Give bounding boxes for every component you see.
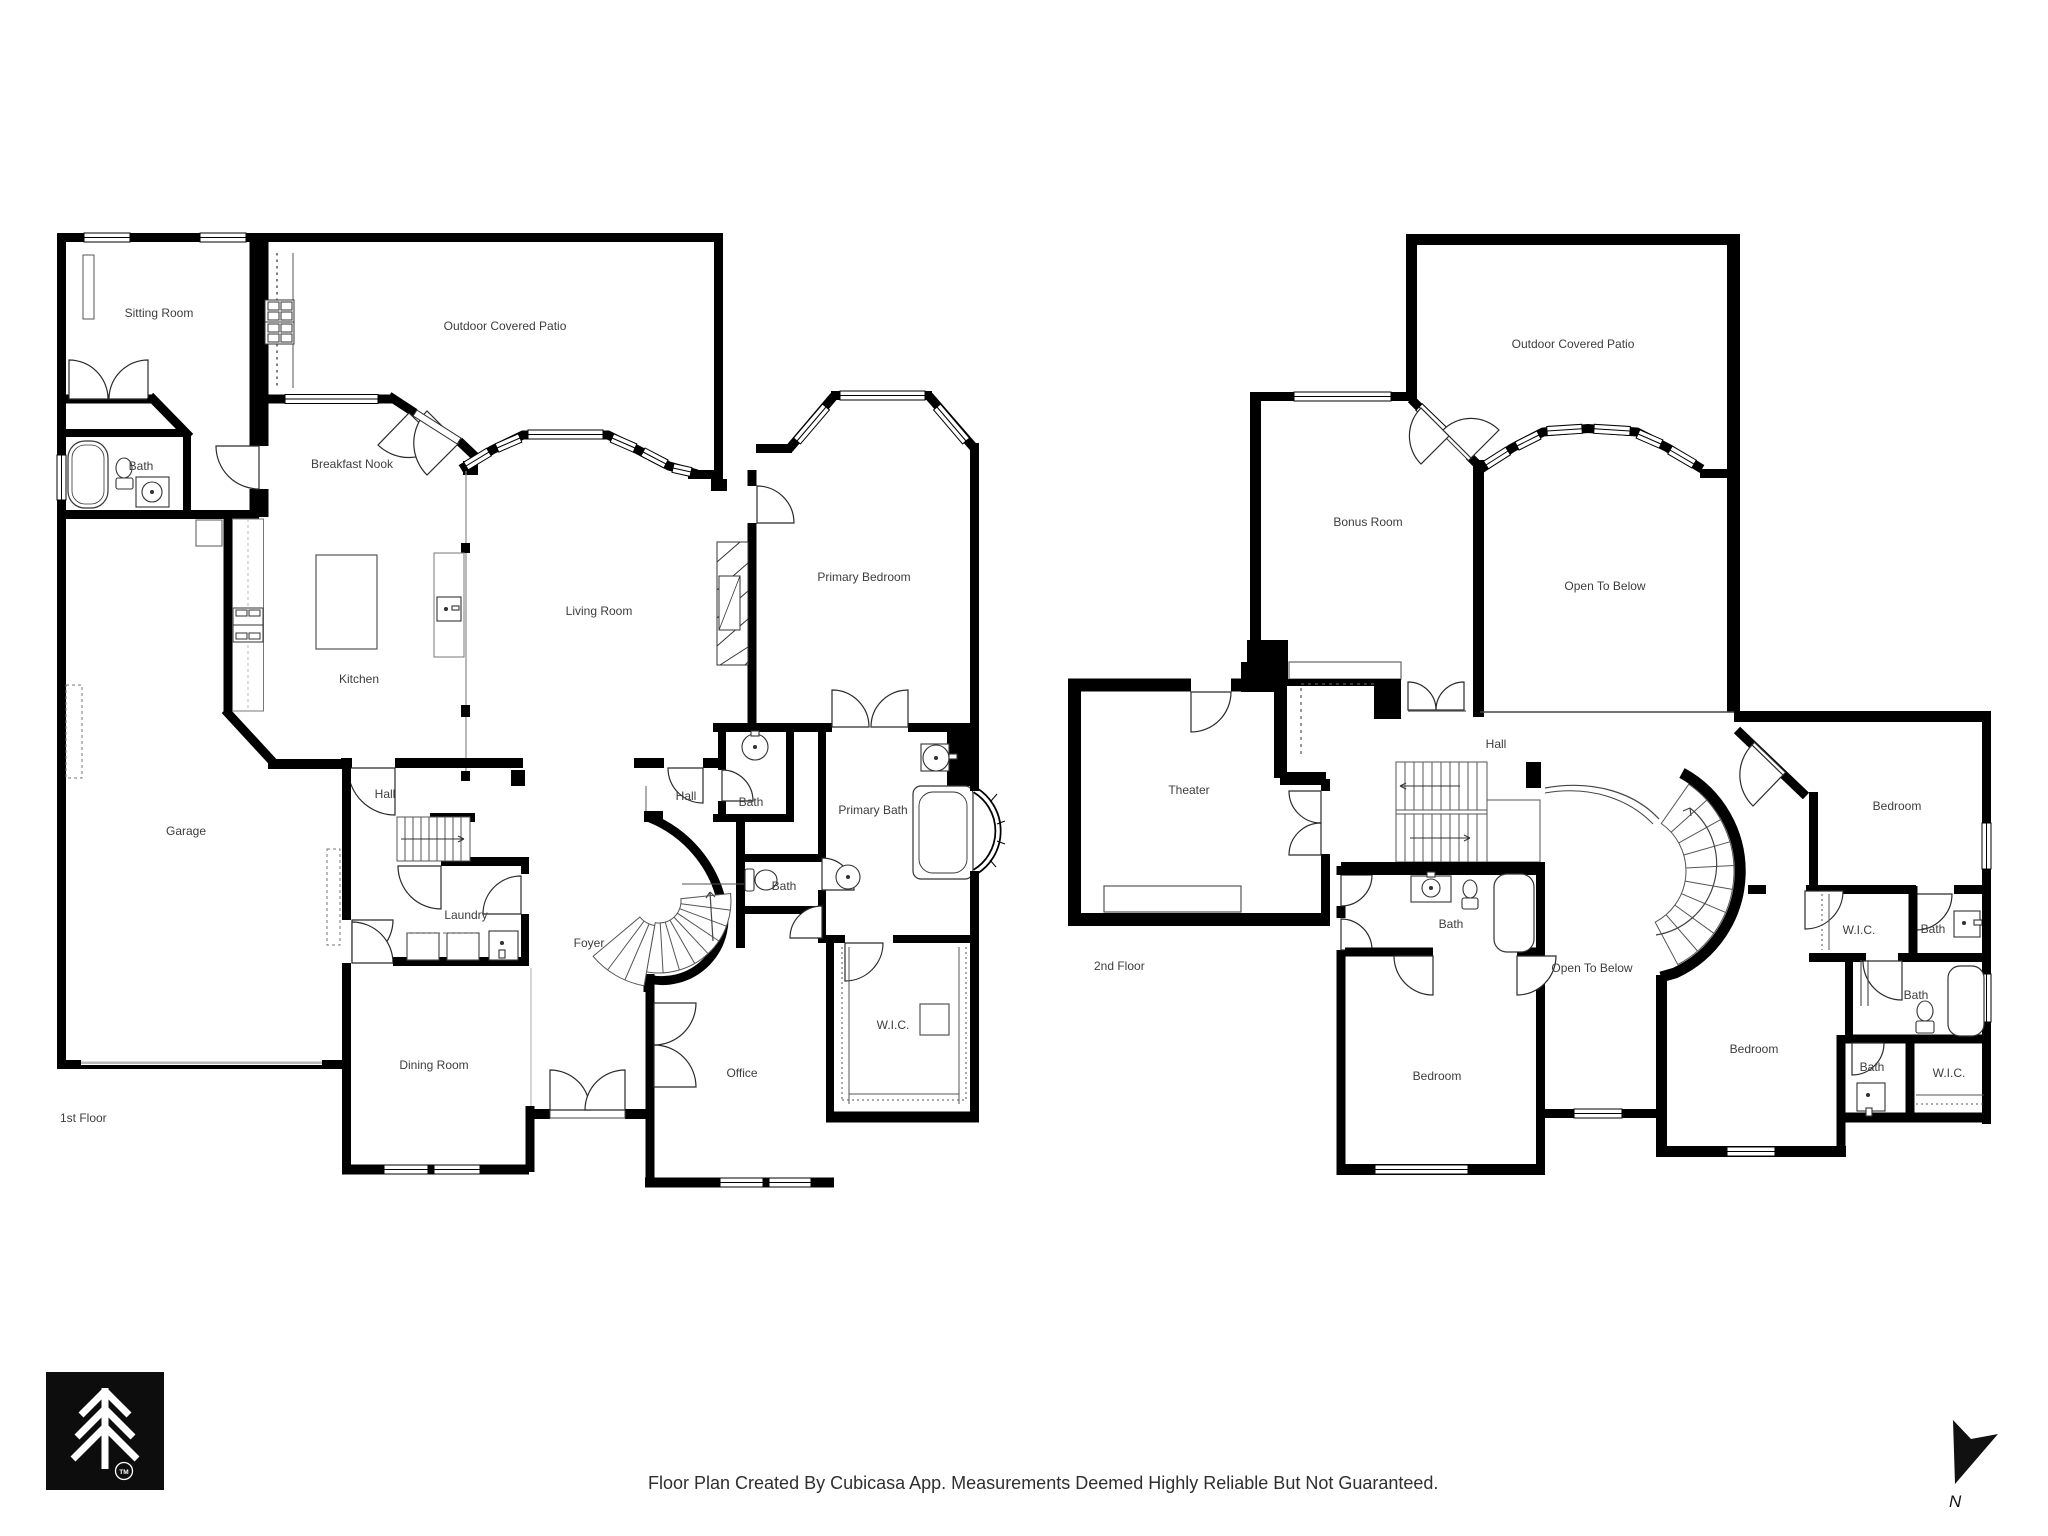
svg-text:Living Room: Living Room (566, 604, 633, 618)
svg-text:W.I.C.: W.I.C. (1933, 1066, 1966, 1080)
svg-text:Bonus Room: Bonus Room (1333, 515, 1402, 529)
svg-text:TM: TM (119, 1469, 128, 1476)
svg-text:Laundry: Laundry (444, 908, 487, 922)
svg-text:Bath: Bath (1439, 917, 1464, 931)
svg-text:W.I.C.: W.I.C. (1843, 923, 1876, 937)
svg-text:Open To Below: Open To Below (1551, 961, 1632, 975)
svg-text:Sitting Room: Sitting Room (125, 306, 194, 320)
svg-text:W.I.C.: W.I.C. (877, 1018, 910, 1032)
svg-text:Hall: Hall (1486, 737, 1507, 751)
svg-text:Hall: Hall (676, 789, 697, 803)
svg-text:Bath: Bath (739, 795, 764, 809)
svg-text:Kitchen: Kitchen (339, 672, 379, 686)
svg-text:Outdoor Covered Patio: Outdoor Covered Patio (444, 319, 567, 333)
svg-text:Bath: Bath (1921, 922, 1946, 936)
svg-text:Bedroom: Bedroom (1730, 1042, 1779, 1056)
svg-text:Foyer: Foyer (574, 936, 605, 950)
svg-text:Garage: Garage (166, 824, 206, 838)
svg-text:Bedroom: Bedroom (1413, 1069, 1462, 1083)
svg-text:Breakfast Nook: Breakfast Nook (311, 457, 394, 471)
svg-text:Bedroom: Bedroom (1873, 799, 1922, 813)
svg-text:2nd Floor: 2nd Floor (1094, 959, 1145, 973)
svg-text:Bath: Bath (129, 459, 154, 473)
svg-text:Office: Office (726, 1066, 757, 1080)
svg-text:Bath: Bath (1860, 1060, 1885, 1074)
svg-text:N: N (1949, 1492, 1962, 1511)
svg-text:Primary Bedroom: Primary Bedroom (817, 570, 910, 584)
svg-text:Outdoor Covered Patio: Outdoor Covered Patio (1512, 337, 1635, 351)
svg-text:Dining Room: Dining Room (399, 1058, 468, 1072)
svg-text:Theater: Theater (1168, 783, 1209, 797)
svg-text:Primary Bath: Primary Bath (838, 803, 907, 817)
svg-text:Bath: Bath (1904, 988, 1929, 1002)
svg-text:1st Floor: 1st Floor (60, 1111, 107, 1125)
svg-text:Bath: Bath (772, 879, 797, 893)
svg-text:Floor Plan Created By Cubicasa: Floor Plan Created By Cubicasa App. Meas… (648, 1473, 1438, 1493)
svg-text:Open To Below: Open To Below (1564, 579, 1645, 593)
svg-text:Hall: Hall (375, 787, 396, 801)
